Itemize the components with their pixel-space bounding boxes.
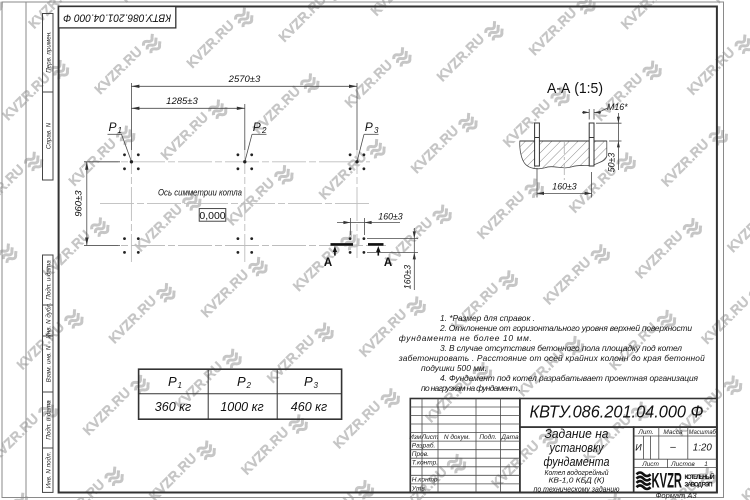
svg-text:KVZR.RU: KVZR.RU (118, 0, 171, 5)
svg-text:Инв. N дубл.: Инв. N дубл. (45, 302, 53, 338)
svg-text:1: 1 (704, 461, 708, 468)
svg-text:КВТУ.086.201.04.000 Ф: КВТУ.086.201.04.000 Ф (63, 11, 171, 23)
svg-text:KVZR.RU: KVZR.RU (106, 293, 159, 346)
svg-text:Лит.: Лит. (637, 429, 653, 436)
svg-text:160±3: 160±3 (403, 265, 413, 290)
svg-text:KVZR.RU: KVZR.RU (158, 109, 211, 162)
svg-text:Подп.: Подп. (479, 433, 496, 441)
svg-text:KVZR.RU: KVZR.RU (0, 161, 27, 214)
svg-text:KVZR.RU: KVZR.RU (238, 424, 291, 477)
svg-text:Задание на: Задание на (545, 427, 609, 441)
svg-text:KVZR.RU: KVZR.RU (526, 5, 579, 58)
svg-text:KVZR.RU: KVZR.RU (92, 43, 145, 96)
svg-text:KVZR.RU: KVZR.RU (710, 0, 750, 6)
svg-text:KVZR.RU: KVZR.RU (658, 136, 711, 189)
svg-text:Листов: Листов (670, 461, 695, 468)
svg-text:KVZR.RU: KVZR.RU (316, 149, 369, 202)
svg-text:KVZR.RU: KVZR.RU (408, 123, 461, 176)
svg-text:KVZR.RU: KVZR.RU (0, 411, 41, 464)
svg-text:2. Отклонение от горизонтально: 2. Отклонение от горизонтального уровня … (439, 323, 692, 333)
svg-text:Утв.: Утв. (411, 485, 427, 492)
svg-text:960±3: 960±3 (74, 190, 85, 217)
svg-text:KVZR.RU: KVZR.RU (724, 202, 750, 255)
svg-text:фундамента: фундамента (544, 455, 610, 469)
svg-text:Лист: Лист (641, 461, 659, 468)
svg-text:Лист: Лист (421, 434, 439, 441)
svg-text:по нагрузкам на фундамент .: по нагрузкам на фундамент . (421, 383, 521, 393)
svg-text:2: 2 (246, 381, 252, 390)
svg-text:KVZR.RU: KVZR.RU (618, 0, 671, 32)
svg-text:1: 1 (178, 381, 182, 390)
svg-text:50±3: 50±3 (607, 153, 617, 173)
svg-text:Ось симметрии котла: Ось симметрии котла (158, 187, 242, 197)
svg-text:P: P (365, 120, 373, 134)
svg-text:Подп. и дата: Подп. и дата (45, 260, 53, 300)
svg-text:P: P (109, 120, 117, 134)
svg-text:KVZR.RU: KVZR.RU (699, 293, 750, 346)
svg-text:Разраб.: Разраб. (412, 442, 436, 450)
svg-text:KVZR.RU: KVZR.RU (342, 57, 395, 110)
svg-text:Н.контр.: Н.контр. (412, 477, 440, 484)
svg-text:подушки 500 мм.: подушки 500 мм. (421, 363, 487, 373)
svg-text:KVZR.RU: KVZR.RU (330, 398, 383, 451)
svg-text:забетонировать . Расстояние от: забетонировать . Расстояние от осей край… (398, 353, 705, 363)
svg-text:3. В случае отсутствия бетонно: 3. В случае отсутствия бетонного пола пл… (440, 343, 682, 353)
svg-text:P: P (237, 374, 246, 389)
svg-text:А: А (384, 257, 392, 269)
svg-text:0,000: 0,000 (199, 210, 225, 222)
svg-text:P: P (304, 374, 313, 389)
svg-text:KVZR.RU: KVZR.RU (540, 254, 593, 307)
svg-text:по техническому заданию: по техническому заданию (534, 484, 620, 493)
svg-text:3: 3 (314, 381, 319, 390)
svg-text:–: – (670, 442, 676, 453)
svg-text:Дата: Дата (500, 434, 519, 441)
svg-text:И: И (635, 443, 642, 453)
svg-text:Справ. N: Справ. N (46, 122, 53, 149)
svg-text:КВ-1,0 КБД (К): КВ-1,0 КБД (К) (549, 476, 605, 485)
svg-text:ЗАВОД РЭП: ЗАВОД РЭП (685, 483, 713, 489)
svg-text:1285±3: 1285±3 (166, 96, 198, 107)
svg-text:1:20: 1:20 (693, 443, 713, 454)
svg-text:KVZR.RU: KVZR.RU (489, 437, 542, 490)
svg-text:1000 кг: 1000 кг (220, 400, 263, 414)
svg-text:KVZR.RU: KVZR.RU (434, 31, 487, 84)
svg-text:KVZR.RU: KVZR.RU (0, 253, 1, 306)
svg-text:KVZR.RU: KVZR.RU (684, 44, 737, 97)
svg-text:2: 2 (261, 126, 267, 135)
svg-text:А: А (324, 257, 332, 269)
svg-text:3: 3 (374, 126, 379, 135)
svg-text:KVZR.RU: KVZR.RU (54, 476, 107, 500)
svg-text:KVZR.RU: KVZR.RU (198, 267, 251, 320)
svg-text:установку: установку (549, 441, 605, 455)
svg-text:КВТУ.086.201.04.000 Ф: КВТУ.086.201.04.000 Ф (530, 402, 704, 422)
svg-text:160±3: 160±3 (378, 212, 403, 222)
svg-text:Подп. и дата: Подп. и дата (45, 400, 53, 440)
svg-text:М16*: М16* (607, 102, 628, 112)
svg-text:P: P (253, 120, 261, 134)
svg-text:Т.контр.: Т.контр. (412, 460, 438, 467)
svg-text:Инв. N подл.: Инв. N подл. (45, 452, 53, 489)
svg-text:Пров.: Пров. (412, 451, 429, 458)
svg-text:Масштаб: Масштаб (689, 428, 716, 436)
svg-text:Взам. инв. N: Взам. инв. N (46, 345, 53, 382)
svg-text:Формат А3: Формат А3 (655, 491, 697, 500)
svg-text:KVZR.RU: KVZR.RU (224, 175, 277, 228)
svg-text:N докум.: N докум. (444, 433, 470, 441)
svg-text:KVZR.RU: KVZR.RU (304, 490, 357, 500)
svg-text:P: P (168, 374, 177, 389)
svg-text:1: 1 (118, 126, 122, 135)
svg-text:4. Фундамент под котел разраба: 4. Фундамент под котел разрабатывает про… (440, 373, 699, 383)
svg-text:KVZR.RU: KVZR.RU (632, 228, 685, 281)
svg-text:KVZR.RU: KVZR.RU (184, 17, 237, 70)
svg-text:KVZR.RU: KVZR.RU (739, 451, 750, 500)
svg-text:КОТЕЛЬНЫЙ: КОТЕЛЬНЫЙ (685, 473, 715, 481)
svg-text:460 кг: 460 кг (291, 400, 327, 414)
svg-text:Перв. примен.: Перв. примен. (46, 31, 53, 73)
svg-text:Масса: Масса (663, 429, 683, 436)
svg-text:1. *Размер для справок .: 1. *Размер для справок . (440, 313, 535, 323)
svg-text:360 кг: 360 кг (155, 400, 191, 414)
svg-text:KVZR.RU: KVZR.RU (474, 188, 527, 241)
svg-text:KVZR.RU: KVZR.RU (80, 384, 133, 437)
svg-text:160±3: 160±3 (552, 182, 577, 192)
svg-text:А-А (1:5): А-А (1:5) (547, 81, 603, 97)
svg-text:KVZR.RU: KVZR.RU (368, 0, 421, 18)
svg-text:2570±3: 2570±3 (228, 74, 261, 85)
svg-text:фундамента не более 10 мм.: фундамента не более 10 мм. (399, 333, 532, 343)
svg-text:KVZR.RU: KVZR.RU (132, 201, 185, 254)
svg-text:KVZR: KVZR (652, 470, 683, 493)
